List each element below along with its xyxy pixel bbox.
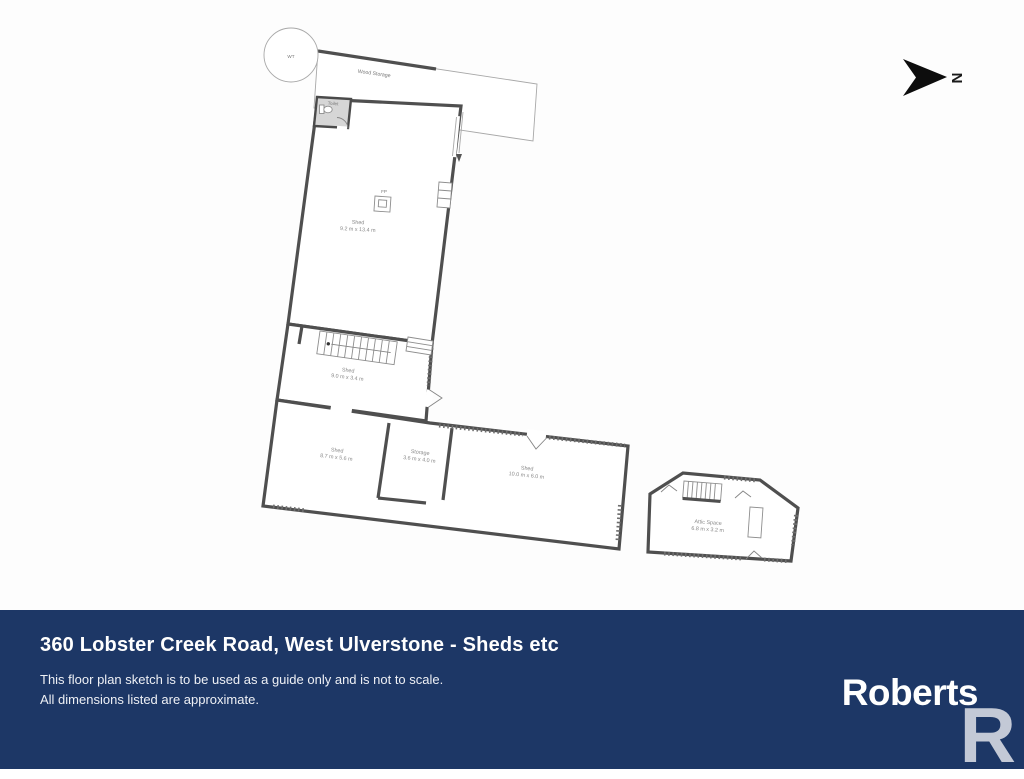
room-label-name: Shed <box>352 220 365 227</box>
toilet-room: Toilet <box>314 97 351 129</box>
door-direction-arrow <box>456 154 462 162</box>
disclaimer-line2: All dimensions listed are approximate. <box>40 692 259 707</box>
fireplace <box>374 196 391 212</box>
roberts-logo-text: Roberts <box>842 672 978 714</box>
attic-staircase <box>683 481 722 501</box>
fireplace-label: FP <box>381 189 387 194</box>
disclaimer-text: This floor plan sketch is to be used as … <box>40 670 443 709</box>
main-shed: FP <box>288 99 463 344</box>
north-arrow-icon: N <box>903 59 965 96</box>
disclaimer-line1: This floor plan sketch is to be used as … <box>40 672 443 687</box>
north-arrow-label: N <box>948 73 965 84</box>
floor-plan-canvas: WT FP Toilet <box>0 0 1024 610</box>
water-tank-label: WT <box>287 54 294 59</box>
attic-cupboard <box>748 507 763 538</box>
bottom-wing <box>263 400 628 549</box>
page-title: 360 Lobster Creek Road, West Ulverstone … <box>40 634 559 657</box>
water-tank: WT <box>264 28 318 82</box>
attic-building <box>648 473 798 561</box>
floor-plan-svg: WT FP Toilet <box>0 0 1024 610</box>
shelf-unit <box>437 182 452 208</box>
toilet-fixture <box>320 105 333 114</box>
toilet-label: Toilet <box>328 101 340 107</box>
roberts-logo-initial: R <box>960 696 1016 774</box>
